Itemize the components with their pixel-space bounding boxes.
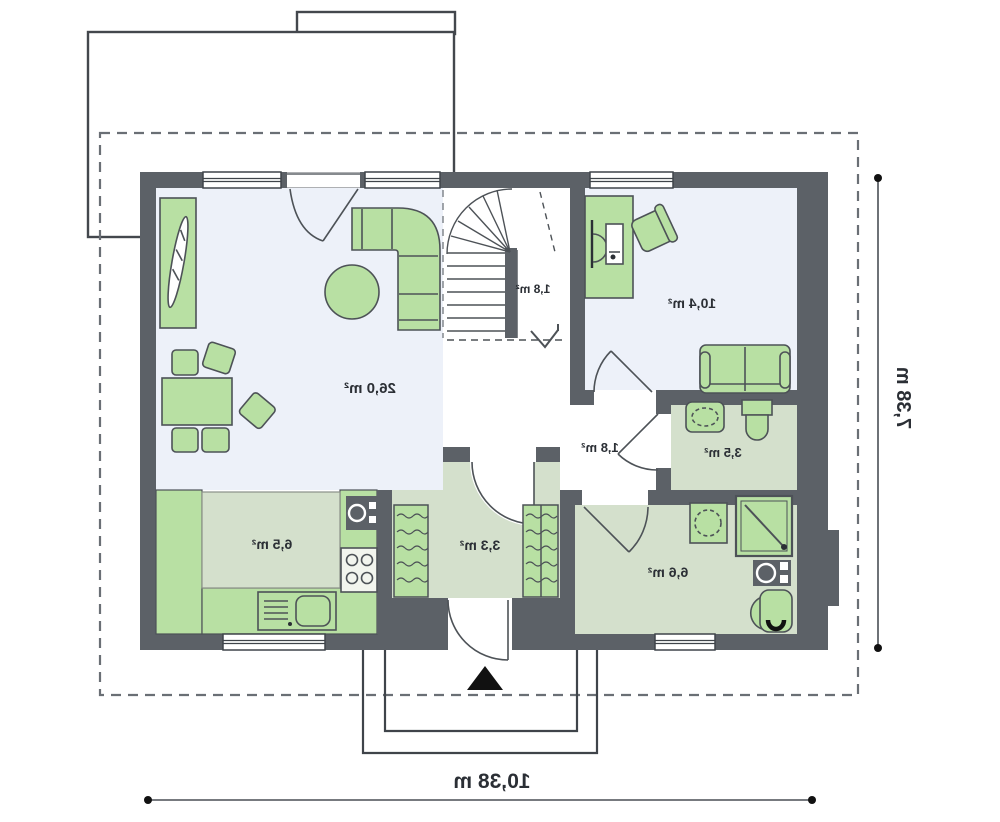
wall-wc-west-bottom (656, 468, 671, 490)
window-bedroom (590, 172, 673, 188)
stairs-newel-wall (505, 248, 517, 338)
dimension-dot (874, 174, 882, 182)
width-dimension-label: 10,38 m (453, 770, 530, 793)
entrance-wall-left (392, 598, 448, 650)
dining-chair (202, 428, 229, 452)
dining-chair (172, 428, 198, 452)
entrance-door-opening (448, 598, 512, 650)
living-room-label: 26,0 m² (344, 380, 396, 397)
bath-vanity-unit (753, 560, 791, 586)
dimension-dot (874, 644, 882, 652)
wc-toilet (742, 400, 772, 440)
window-living-left (203, 172, 281, 188)
wall-wc-west-top (656, 405, 671, 414)
dimension-dot (808, 796, 816, 804)
porch-inner-outline (385, 650, 577, 731)
bedroom-label: 10,4 m² (668, 295, 717, 311)
kitchen-counter-left (156, 490, 202, 634)
floor-plan-page: 26,0 m² 1,8 m² 10,4 m² 1,8 m² 3,5 m² 6,5… (0, 0, 1000, 822)
entrance-arrow (467, 666, 503, 690)
staircase-label: 1,8 m² (516, 282, 551, 296)
window-bathroom (655, 634, 715, 650)
balcony-door-opening (287, 173, 360, 188)
floor-plan-drawing: 26,0 m² 1,8 m² 10,4 m² 1,8 m² 3,5 m² 6,5… (0, 0, 1000, 822)
window-kitchen (223, 634, 325, 650)
kitchen-sink (296, 596, 330, 626)
shower (736, 496, 792, 556)
coffee-table (325, 265, 379, 319)
bathroom-label: 6,6 m² (647, 564, 688, 580)
wc-label: 3,5 m² (704, 445, 742, 460)
house: 26,0 m² 1,8 m² 10,4 m² 1,8 m² 3,5 m² 6,5… (140, 172, 839, 690)
wall-bedroom-south-left (570, 390, 594, 405)
stove-unit (346, 496, 380, 530)
porch (363, 650, 597, 753)
width-dimension: 10,38 m (144, 770, 816, 804)
bedroom-sofa (700, 345, 790, 393)
cooktop (341, 548, 377, 592)
hallway-label: 1,8 m² (581, 440, 619, 455)
entrance-wall-right (512, 598, 575, 650)
wall-hall-entry-right (536, 447, 560, 462)
entry-hall-label: 3,3 m² (459, 537, 500, 553)
porch-outer-outline (363, 650, 597, 753)
height-dimension: 7,38 m (874, 174, 914, 652)
wall-hall-entry-left (443, 447, 470, 462)
window-living-right (365, 172, 440, 188)
wall-stairs-bedroom (570, 188, 585, 392)
dimension-dot (144, 796, 152, 804)
wardrobe-left (394, 505, 428, 597)
kitchen-label: 6,5 m² (251, 536, 292, 552)
roof-outline-small (297, 12, 455, 34)
height-dimension-label: 7,38 m (892, 367, 914, 429)
dining-chair (172, 350, 198, 375)
dining-table (162, 378, 232, 425)
